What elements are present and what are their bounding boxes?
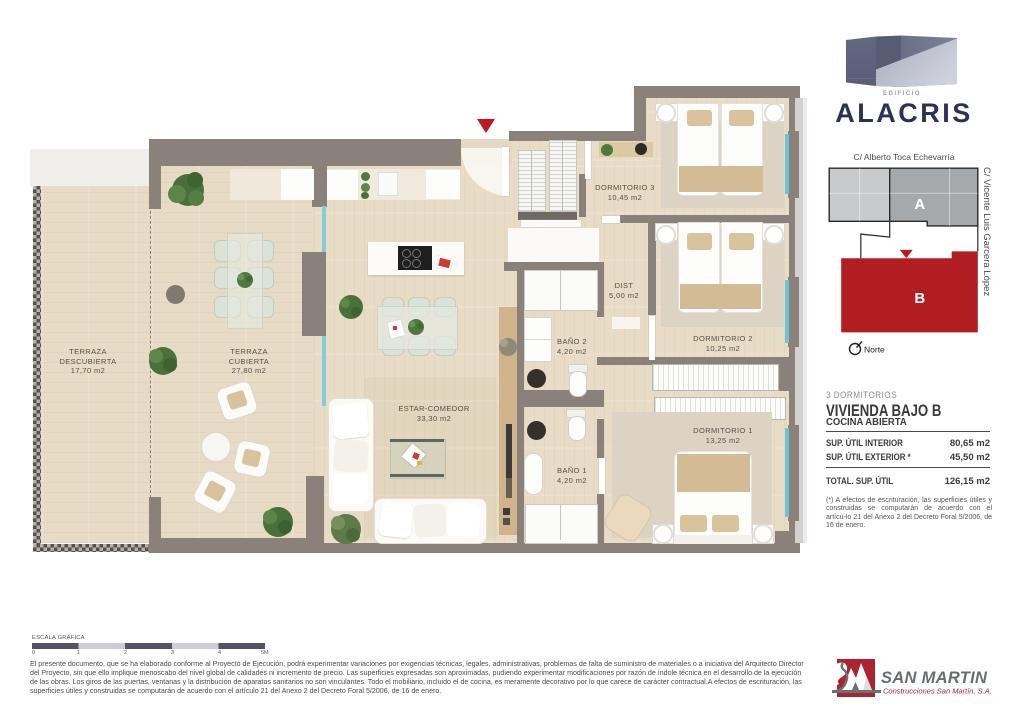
svg-text:Construcciones San Martín, S.A: Construcciones San Martín, S.A.	[883, 687, 992, 696]
svg-text:SAN MARTIN: SAN MARTIN	[881, 669, 988, 687]
